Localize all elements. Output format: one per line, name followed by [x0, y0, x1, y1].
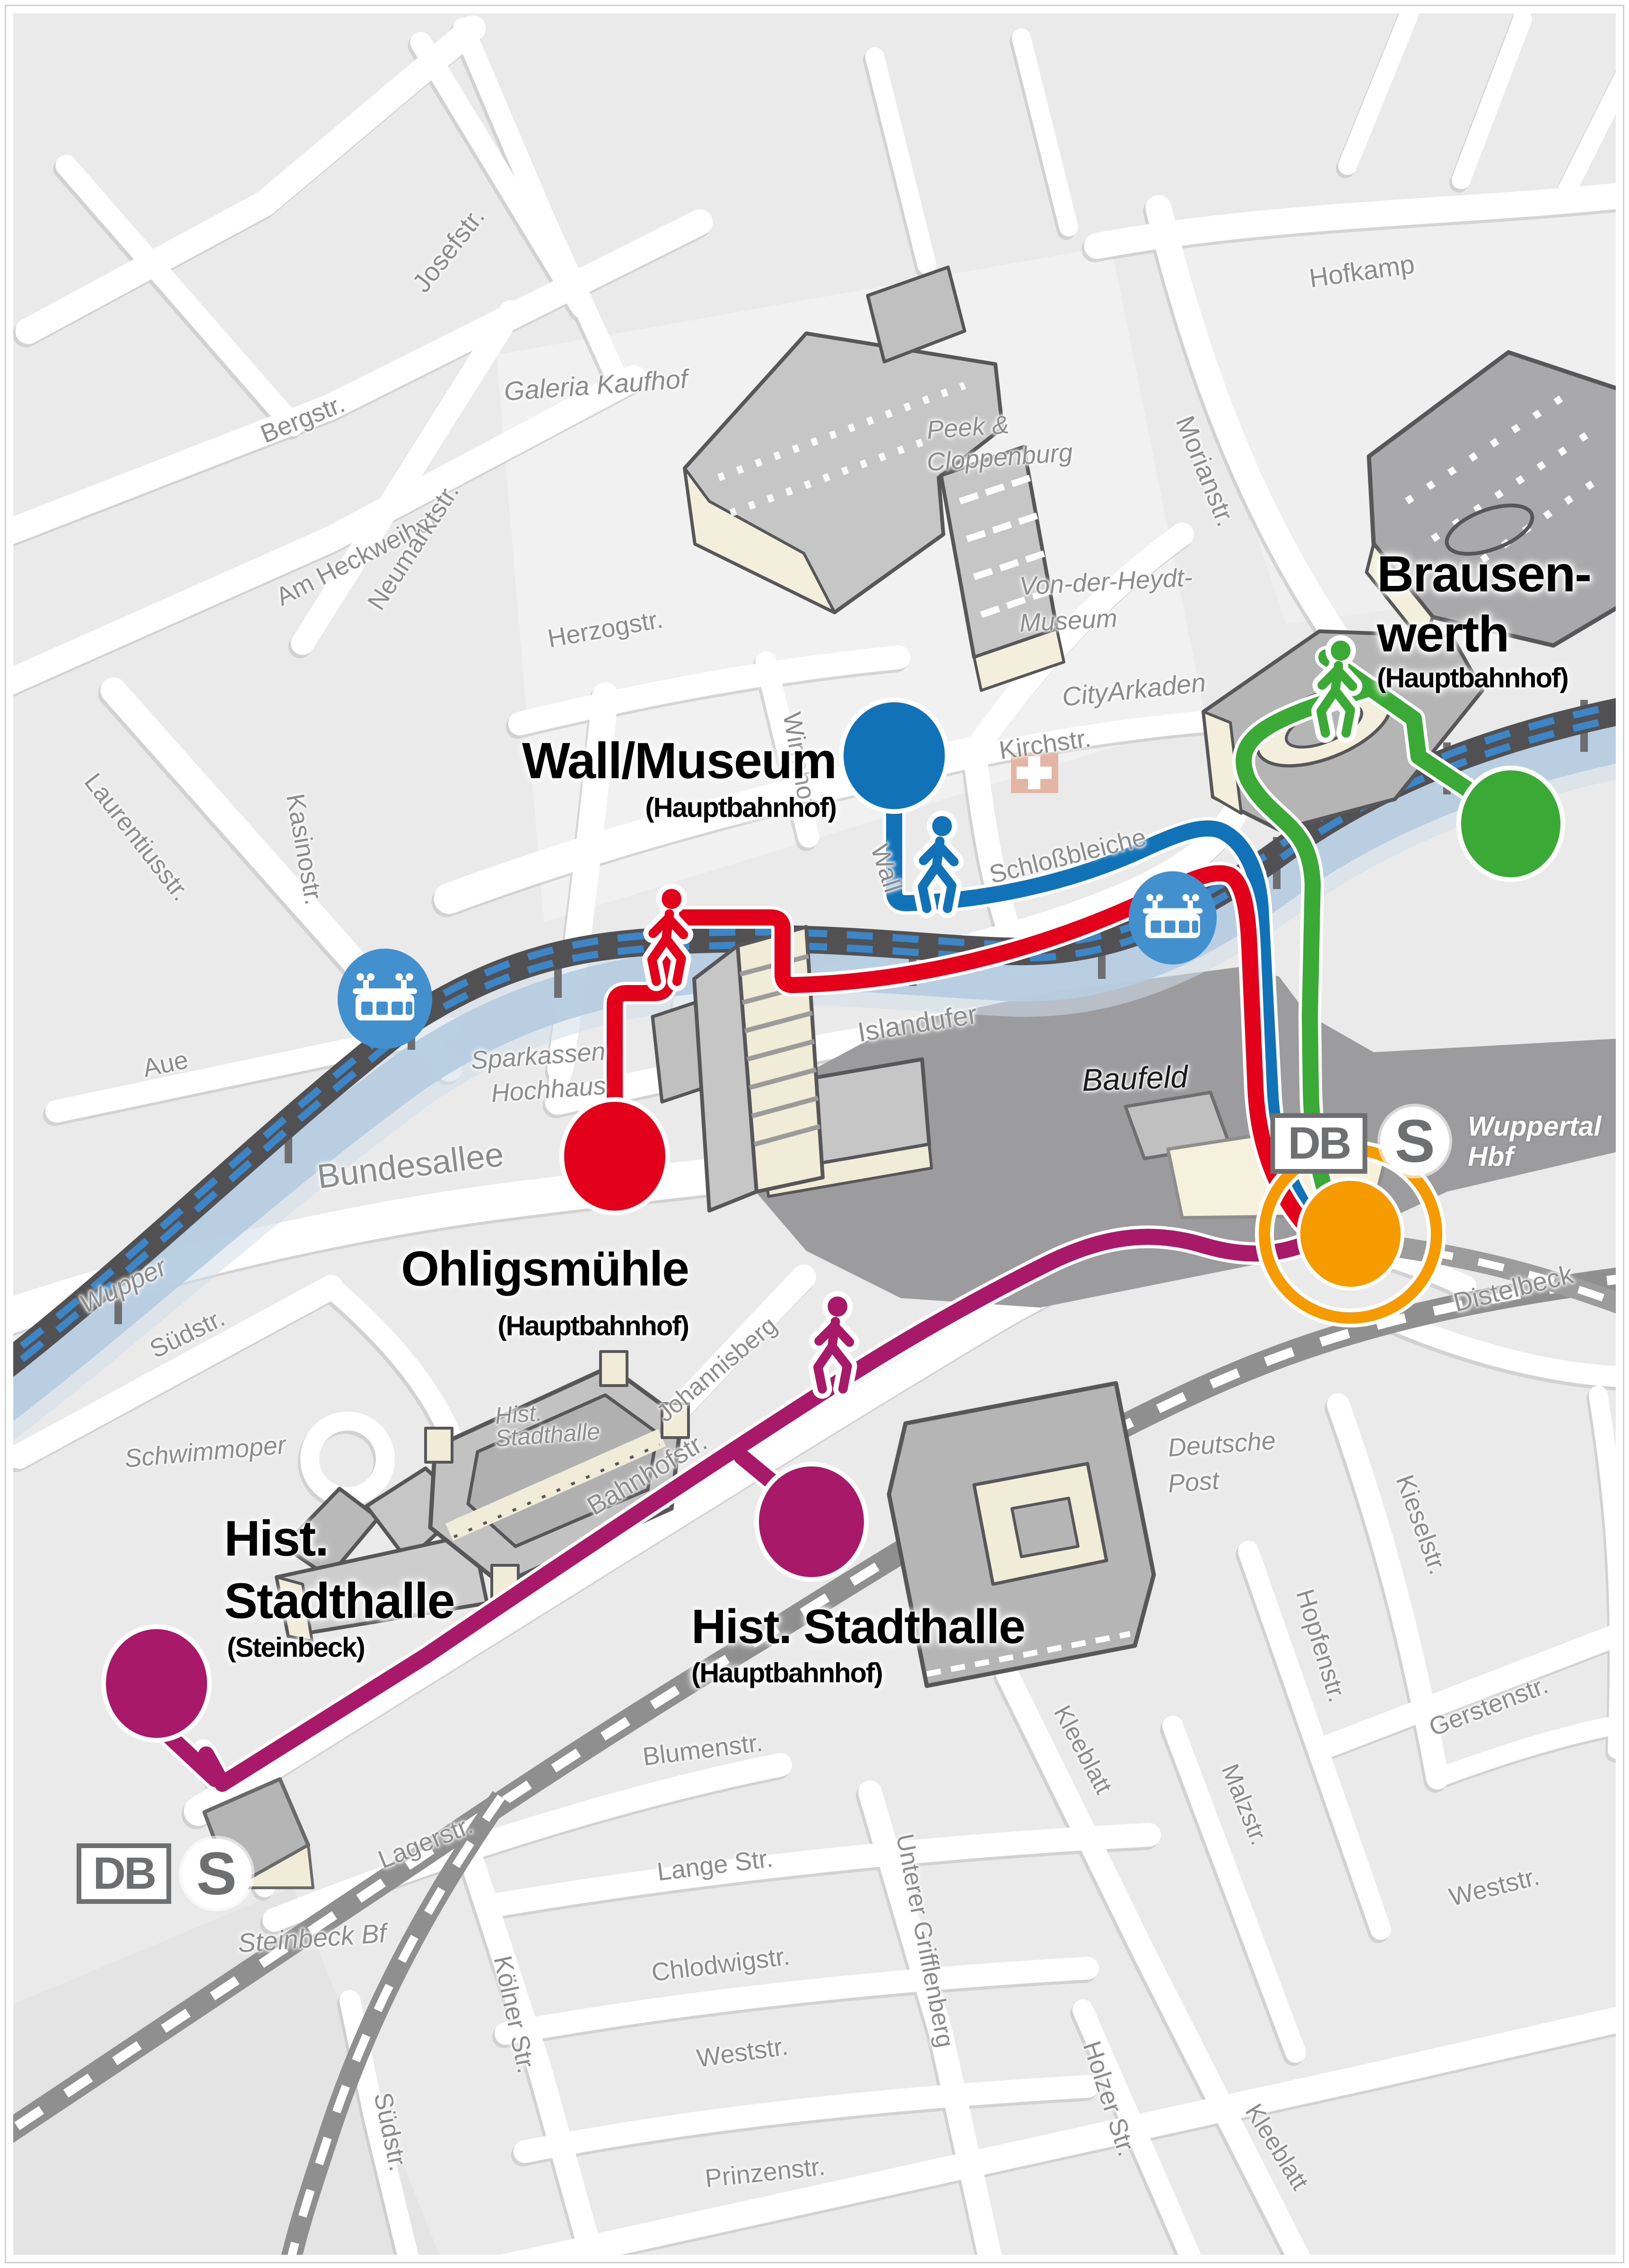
stop-label-brausenwerth-1: Brausen-	[1377, 544, 1591, 603]
stop-label-ohligsmuehle-sub: (Hauptbahnhof)	[497, 1310, 688, 1342]
stop-label-hist-stadthalle-hbf: Hist. Stadthalle	[691, 1599, 1025, 1655]
map-canvas: Josefstr. Bergstr. Am Heckweiher Neumark…	[13, 13, 1616, 2255]
stop-label-hist-stadthalle-steinbeck-sub: (Steinbeck)	[227, 1632, 365, 1664]
db-logo-hbf: DB	[1271, 1113, 1368, 1174]
place-label-peek-1: Peek &	[926, 410, 1010, 445]
street-label-koelner-str: Kölner Str.	[488, 1953, 541, 2076]
place-label-wupper: Wupper	[75, 1251, 172, 1319]
street-label-kleeblatt-upper: Kleeblatt	[1048, 1701, 1118, 1799]
place-label-deutsche-post-2: Post	[1167, 1466, 1220, 1499]
street-label-prinzenstr: Prinzenstr.	[704, 2152, 827, 2193]
street-label-laurentiusstr: Laurentiusstr.	[78, 768, 196, 907]
street-label-holzer-str: Holzer Str.	[1077, 2038, 1142, 2160]
db-logo-steinbeck: DB	[77, 1843, 171, 1904]
stop-label-wall-museum: Wall/Museum	[522, 731, 836, 790]
place-label-galeria-kaufhof: Galeria Kaufhof	[503, 363, 689, 407]
street-label-distelbeck: Distelbeck	[1450, 1258, 1576, 1318]
street-label-wall: Wall	[865, 840, 908, 896]
street-label-bergstr: Bergstr.	[256, 389, 349, 449]
station-label-steinbeck-bf: Steinbeck Bf	[237, 1918, 387, 1959]
stop-label-hist-stadthalle-hbf-sub: (Hauptbahnhof)	[691, 1657, 882, 1689]
street-label-malzstr: Malzstr.	[1216, 1760, 1274, 1849]
station-label-wuppertal-hbf-2: Hbf	[1468, 1141, 1514, 1173]
sbahn-logo-steinbeck: S	[182, 1839, 252, 1909]
stop-label-hist-stadthalle-steinbeck-2: Stadthalle	[224, 1573, 454, 1630]
street-label-weststr-right: Weststr.	[1446, 1861, 1542, 1912]
label-layer: Josefstr. Bergstr. Am Heckweiher Neumark…	[13, 13, 1616, 2255]
place-label-sparkassen-1: Sparkassen	[470, 1037, 607, 1075]
place-label-peek-2: Cloppenburg	[926, 438, 1074, 477]
street-label-suedstr-lower: Südstr.	[368, 2090, 413, 2173]
street-label-gerstenstr: Gerstenstr.	[1425, 1670, 1552, 1743]
place-label-baufeld: Baufeld	[1081, 1058, 1188, 1098]
map-sheet: Josefstr. Bergstr. Am Heckweiher Neumark…	[0, 0, 1629, 2268]
street-label-schlossbleiche: Schloßbleiche	[986, 822, 1149, 890]
street-label-kasinostr: Kasinostr.	[280, 792, 329, 907]
street-label-unterer-grifflenberg: Unterer Grifflenberg	[890, 1832, 959, 2050]
street-label-hopfenstr: Hopfenstr.	[1290, 1586, 1352, 1706]
place-label-schwimmoper: Schwimmoper	[123, 1430, 287, 1474]
street-label-chlodwigstr: Chlodwigstr.	[650, 1941, 792, 1987]
street-label-herzogstr: Herzogstr.	[545, 604, 665, 654]
sbahn-logo-hbf: S	[1380, 1107, 1449, 1176]
street-label-bundesallee: Bundesallee	[315, 1135, 505, 1196]
stop-label-hist-stadthalle-steinbeck-1: Hist.	[224, 1510, 328, 1568]
street-label-lange-str: Lange Str.	[655, 1843, 775, 1887]
stop-label-ohligsmuehle: Ohligsmühle	[401, 1241, 688, 1298]
street-label-kieselstr: Kieselstr.	[1390, 1471, 1453, 1578]
place-label-sparkassen-2: Hochhaus	[490, 1071, 607, 1108]
street-label-josefstr: Josefstr.	[406, 201, 491, 298]
place-label-vdh-1: Von-der-Heydt-	[1019, 563, 1193, 601]
street-label-blumenstr: Blumenstr.	[641, 1728, 765, 1772]
place-label-vdh-2: Museum	[1019, 603, 1118, 638]
street-label-kleeblatt-lower: Kleeblatt	[1239, 2099, 1314, 2195]
stop-label-wall-museum-sub: (Hauptbahnhof)	[645, 792, 836, 824]
stop-label-brausenwerth-sub: (Hauptbahnhof)	[1377, 663, 1568, 694]
place-label-deutsche-post-1: Deutsche	[1167, 1426, 1277, 1463]
street-label-weststr-center: Weststr.	[695, 2032, 790, 2073]
stop-label-brausenwerth-2: werth	[1377, 604, 1508, 663]
street-label-islandufer: Islandufer	[855, 998, 979, 1048]
place-label-cityarkaden: CityArkaden	[1061, 667, 1207, 713]
street-label-suedstr-upper: Südstr.	[145, 1303, 229, 1364]
street-label-morianstr: Morianstr.	[1170, 411, 1242, 531]
street-label-lagerstr: Lagerstr.	[374, 1810, 477, 1875]
street-label-aue: Aue	[140, 1045, 191, 1083]
street-label-bahnhofstr: Bahnhofstr.	[582, 1426, 712, 1521]
street-label-kirchstr: Kirchstr.	[997, 724, 1093, 766]
street-label-hofkamp: Hofkamp	[1307, 248, 1417, 294]
station-label-wuppertal-hbf-1: Wuppertal	[1468, 1111, 1602, 1143]
